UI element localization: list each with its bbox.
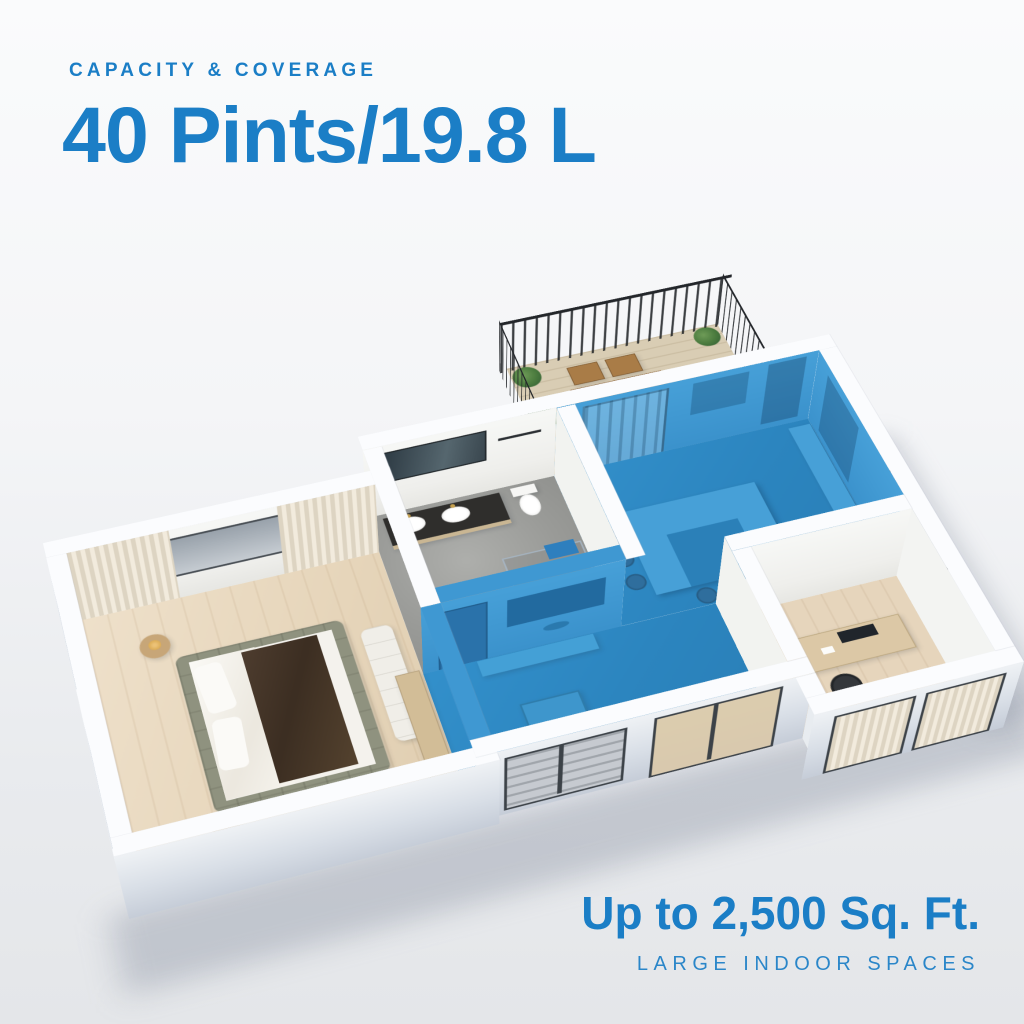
floor-plan-scene: [28, 313, 994, 934]
capacity-coverage-infographic: CAPACITY & COVERAGE 40 Pints/19.8 L: [0, 0, 1024, 1024]
kitchen-wall-recess: [690, 371, 749, 415]
floor-plan-3d: [73, 296, 904, 877]
coverage-subtitle: LARGE INDOOR SPACES: [581, 953, 980, 976]
capacity-headline: 40 Pints/19.8 L: [62, 94, 596, 177]
coverage-footer: Up to 2,500 Sq. Ft. LARGE INDOOR SPACES: [581, 886, 980, 976]
coverage-area-text: Up to 2,500 Sq. Ft.: [581, 886, 980, 941]
tv-recess: [507, 577, 606, 627]
kitchen-wall-niche: [760, 356, 806, 424]
towel-bar: [498, 429, 541, 441]
eyebrow-label: CAPACITY & COVERAGE: [69, 60, 377, 82]
speaker: [543, 619, 569, 632]
